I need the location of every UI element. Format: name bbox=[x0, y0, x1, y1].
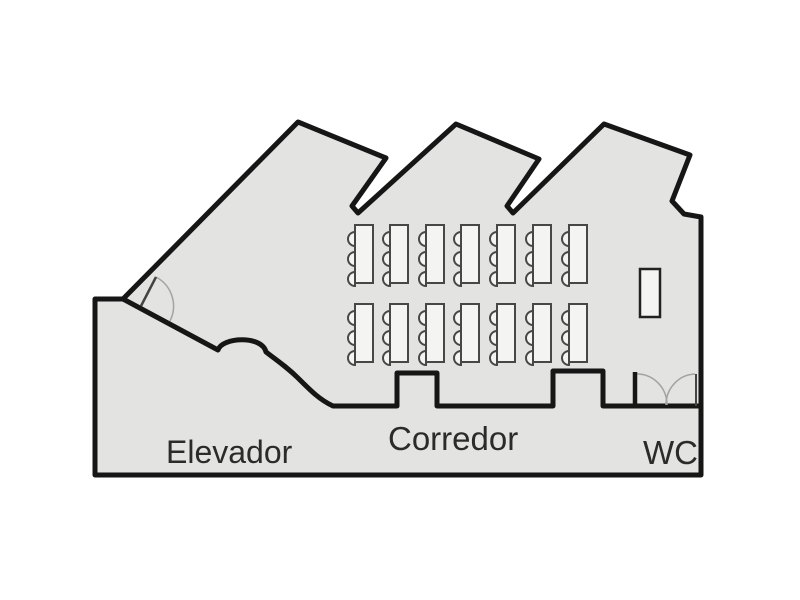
table bbox=[533, 304, 551, 362]
chair bbox=[562, 252, 569, 266]
chair bbox=[419, 311, 426, 325]
table-group bbox=[490, 304, 515, 365]
table-group bbox=[383, 304, 408, 365]
chair bbox=[383, 272, 390, 286]
chair bbox=[454, 311, 461, 325]
table-group bbox=[348, 304, 373, 365]
label-corredor: Corredor bbox=[388, 420, 518, 457]
chair bbox=[419, 331, 426, 345]
chair bbox=[526, 331, 533, 345]
table-group bbox=[419, 225, 444, 286]
table-group bbox=[454, 304, 479, 365]
chair bbox=[562, 311, 569, 325]
chair bbox=[383, 311, 390, 325]
table bbox=[390, 304, 408, 362]
chair bbox=[526, 351, 533, 365]
chair bbox=[526, 232, 533, 246]
chair bbox=[383, 252, 390, 266]
table bbox=[533, 225, 551, 283]
chair bbox=[526, 272, 533, 286]
table-group bbox=[490, 225, 515, 286]
chair bbox=[348, 232, 355, 246]
table bbox=[390, 225, 408, 283]
table-group bbox=[419, 304, 444, 365]
table bbox=[497, 304, 515, 362]
chair bbox=[454, 252, 461, 266]
chair bbox=[490, 272, 497, 286]
table-group bbox=[526, 304, 551, 365]
chair bbox=[454, 331, 461, 345]
chair bbox=[454, 272, 461, 286]
table bbox=[355, 304, 373, 362]
chair bbox=[419, 272, 426, 286]
table-group bbox=[526, 225, 551, 286]
table bbox=[569, 225, 587, 283]
chair bbox=[490, 351, 497, 365]
table-group bbox=[348, 225, 373, 286]
table-group bbox=[562, 225, 587, 286]
table-group bbox=[562, 304, 587, 365]
chair bbox=[562, 272, 569, 286]
table bbox=[497, 225, 515, 283]
table bbox=[569, 304, 587, 362]
cabinet bbox=[640, 269, 660, 317]
table bbox=[355, 225, 373, 283]
table bbox=[461, 304, 479, 362]
chair bbox=[562, 351, 569, 365]
chair bbox=[490, 252, 497, 266]
table-group bbox=[454, 225, 479, 286]
label-wc: WC bbox=[643, 434, 698, 471]
table bbox=[426, 225, 444, 283]
label-elevador: Elevador bbox=[166, 434, 293, 470]
table bbox=[461, 225, 479, 283]
chair bbox=[419, 351, 426, 365]
chair bbox=[383, 232, 390, 246]
chair bbox=[490, 311, 497, 325]
floor-plan: Elevador Corredor WC bbox=[0, 0, 800, 600]
chair bbox=[383, 331, 390, 345]
chair bbox=[526, 252, 533, 266]
chair bbox=[454, 351, 461, 365]
table-group bbox=[383, 225, 408, 286]
chair bbox=[348, 331, 355, 345]
chair bbox=[490, 331, 497, 345]
chair bbox=[526, 311, 533, 325]
chair bbox=[490, 232, 497, 246]
chair bbox=[348, 252, 355, 266]
chair bbox=[348, 351, 355, 365]
chair bbox=[383, 351, 390, 365]
chair bbox=[562, 232, 569, 246]
table bbox=[426, 304, 444, 362]
chair bbox=[562, 331, 569, 345]
chair bbox=[348, 272, 355, 286]
chair bbox=[419, 252, 426, 266]
floor-plan-canvas: Elevador Corredor WC bbox=[0, 0, 800, 600]
chair bbox=[454, 232, 461, 246]
chair bbox=[419, 232, 426, 246]
chair bbox=[348, 311, 355, 325]
